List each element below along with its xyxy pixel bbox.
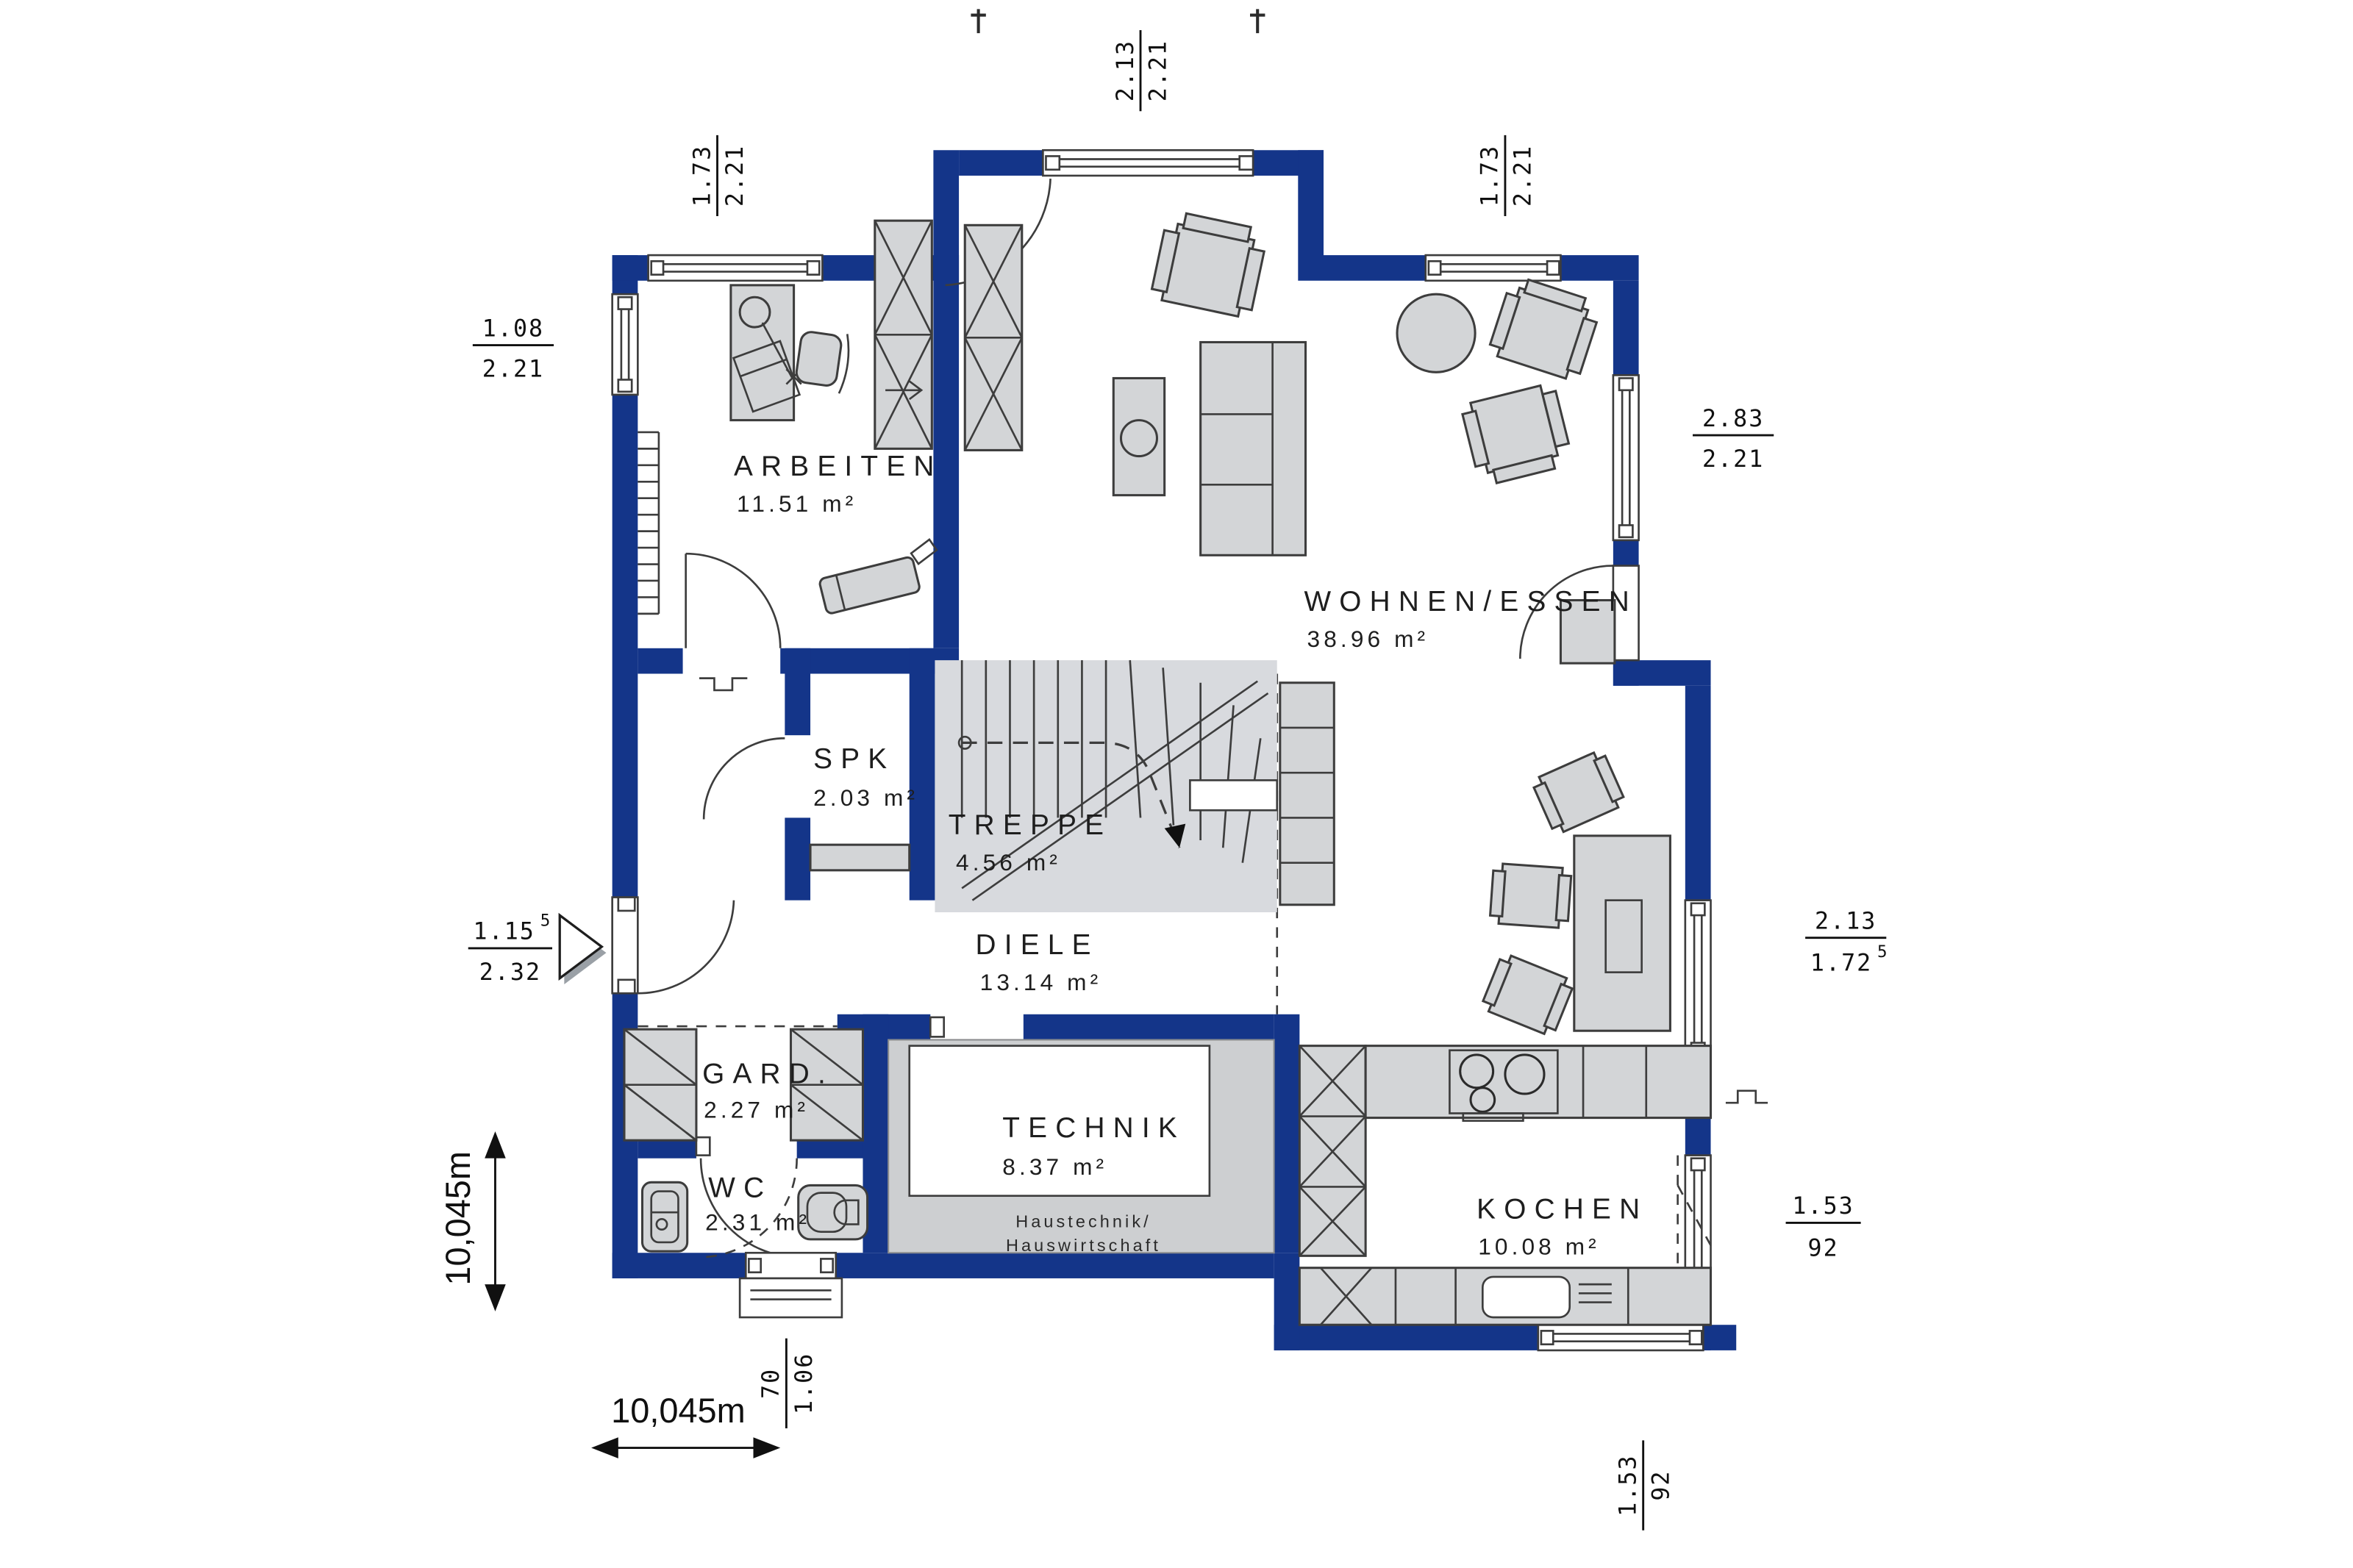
window-right-upper <box>1613 375 1639 540</box>
svg-text:2.21: 2.21 <box>482 356 544 382</box>
dim-right-upper: 2.83 2.21 <box>1693 406 1774 473</box>
entrance-marker-icon <box>560 915 606 984</box>
room-label-arbeiten: ARBEITEN <box>734 451 943 482</box>
room-label-kochen: KOCHEN <box>1477 1193 1648 1225</box>
washbasin <box>642 1182 687 1251</box>
room-area-treppe: 4.56 m² <box>956 849 1061 876</box>
window-right-tall <box>1685 901 1711 1058</box>
svg-text:1.53: 1.53 <box>1792 1193 1854 1220</box>
door-entrance <box>613 898 734 994</box>
dining-chair-1 <box>1531 749 1627 836</box>
door-rear <box>740 1253 842 1317</box>
svg-text:5: 5 <box>1877 942 1888 962</box>
svg-text:2.21: 2.21 <box>722 145 749 207</box>
coffee-table <box>1113 378 1164 495</box>
room-area-kochen: 10.08 m² <box>1478 1233 1600 1259</box>
door-spk <box>704 738 785 819</box>
dim-left-upper: 1.08 2.21 <box>473 315 554 382</box>
lounger <box>815 538 945 614</box>
svg-text:10,045m: 10,045m <box>439 1151 477 1286</box>
reference-ticks <box>971 9 1265 33</box>
svg-text:1.53: 1.53 <box>1615 1454 1641 1516</box>
kitchen-tall-cabinets <box>1299 1046 1365 1256</box>
room-label-technik: TECHNIK <box>1002 1112 1185 1144</box>
svg-text:1.06: 1.06 <box>791 1353 818 1414</box>
room-label-gard: GARD. <box>702 1059 834 1090</box>
svg-text:1.72: 1.72 <box>1810 951 1872 977</box>
scale-width: 10,045m <box>591 1392 780 1458</box>
dim-bottom-kitchen: 1.53 92 <box>1615 1440 1674 1530</box>
room-area-diele: 13.14 m² <box>980 969 1102 995</box>
scale-height: 10,045m <box>439 1131 506 1311</box>
svg-text:2.21: 2.21 <box>1146 40 1172 101</box>
svg-text:2.13: 2.13 <box>1113 40 1139 101</box>
room-area-technik: 8.37 m² <box>1002 1153 1107 1180</box>
technik-note-1: Haustechnik/ <box>1015 1212 1151 1231</box>
office-chair <box>794 328 851 394</box>
room-label-wc: WC <box>708 1173 772 1204</box>
room-label-wohnen: WOHNEN/ESSEN <box>1304 586 1637 617</box>
room-area-spk: 2.03 m² <box>813 784 918 811</box>
dim-bottom-door: 70 1.06 <box>758 1339 818 1428</box>
dim-right-lower: 1.53 92 <box>1786 1193 1861 1261</box>
armchair-top <box>1150 210 1268 319</box>
svg-text:2.32: 2.32 <box>479 959 541 986</box>
wohnen-cabinet <box>965 225 1022 450</box>
floor-plan-canvas: ARBEITEN 11.51 m² WOHNEN/ESSEN 38.96 m² … <box>0 0 2353 1568</box>
technik-note-2: Hauswirtschaft <box>1006 1236 1161 1255</box>
kitchen-counter-bottom <box>1299 1268 1710 1325</box>
svg-text:1.15: 1.15 <box>474 919 535 945</box>
window-left-upper <box>613 294 638 395</box>
door-arbeiten <box>686 554 781 648</box>
dim-top-right: 1.73 2.21 <box>1477 135 1537 216</box>
room-label-diele: DIELE <box>976 929 1099 961</box>
wall-notch <box>699 679 747 690</box>
arbeiten-cabinet <box>875 221 932 448</box>
sofa <box>1201 342 1306 555</box>
room-label-spk: SPK <box>813 743 895 775</box>
svg-text:1.73: 1.73 <box>1477 145 1504 207</box>
window-top-left <box>649 255 823 281</box>
svg-text:1.08: 1.08 <box>482 315 544 342</box>
window-kitchen-bottom <box>1538 1325 1703 1350</box>
dim-left-entrance: 1.15 5 2.32 <box>468 911 607 985</box>
room-area-arbeiten: 11.51 m² <box>737 490 857 517</box>
svg-text:2.13: 2.13 <box>1815 908 1877 934</box>
svg-text:5: 5 <box>540 911 551 930</box>
svg-text:10,045m: 10,045m <box>611 1392 746 1430</box>
room-area-gard: 2.27 m² <box>704 1097 809 1123</box>
svg-text:2.21: 2.21 <box>1702 446 1764 473</box>
spk-furniture <box>810 845 910 870</box>
dining-chair-2 <box>1490 863 1572 928</box>
dim-top-center: 2.13 2.21 <box>1113 30 1172 111</box>
armchair-right-1 <box>1488 275 1603 382</box>
svg-text:92: 92 <box>1808 1235 1839 1261</box>
wall-notch-kitchen <box>1726 1091 1768 1103</box>
room-area-wohnen: 38.96 m² <box>1307 626 1429 652</box>
radiator <box>638 432 659 614</box>
dim-right-mid: 2.13 1.72 5 <box>1805 908 1887 976</box>
bookshelf <box>1280 683 1334 905</box>
svg-text:1.73: 1.73 <box>689 145 715 207</box>
svg-text:92: 92 <box>1648 1469 1674 1500</box>
svg-text:2.83: 2.83 <box>1702 406 1764 432</box>
round-side-table <box>1397 294 1475 372</box>
svg-text:2.21: 2.21 <box>1510 145 1537 207</box>
svg-text:70: 70 <box>758 1368 785 1399</box>
armchair-right-2 <box>1460 382 1574 487</box>
gard-cabinet-left <box>624 1029 696 1140</box>
kitchen-counter-top <box>1365 1046 1768 1121</box>
dining-table <box>1574 836 1671 1031</box>
dining-chair-3 <box>1480 953 1575 1037</box>
room-label-treppe: TREPPE <box>949 809 1112 841</box>
dim-top-left: 1.73 2.21 <box>689 135 749 216</box>
window-top-right <box>1426 255 1561 281</box>
wohnen-furniture <box>965 210 1670 1037</box>
room-area-wc: 2.31 m² <box>705 1209 810 1236</box>
desk <box>731 285 801 420</box>
